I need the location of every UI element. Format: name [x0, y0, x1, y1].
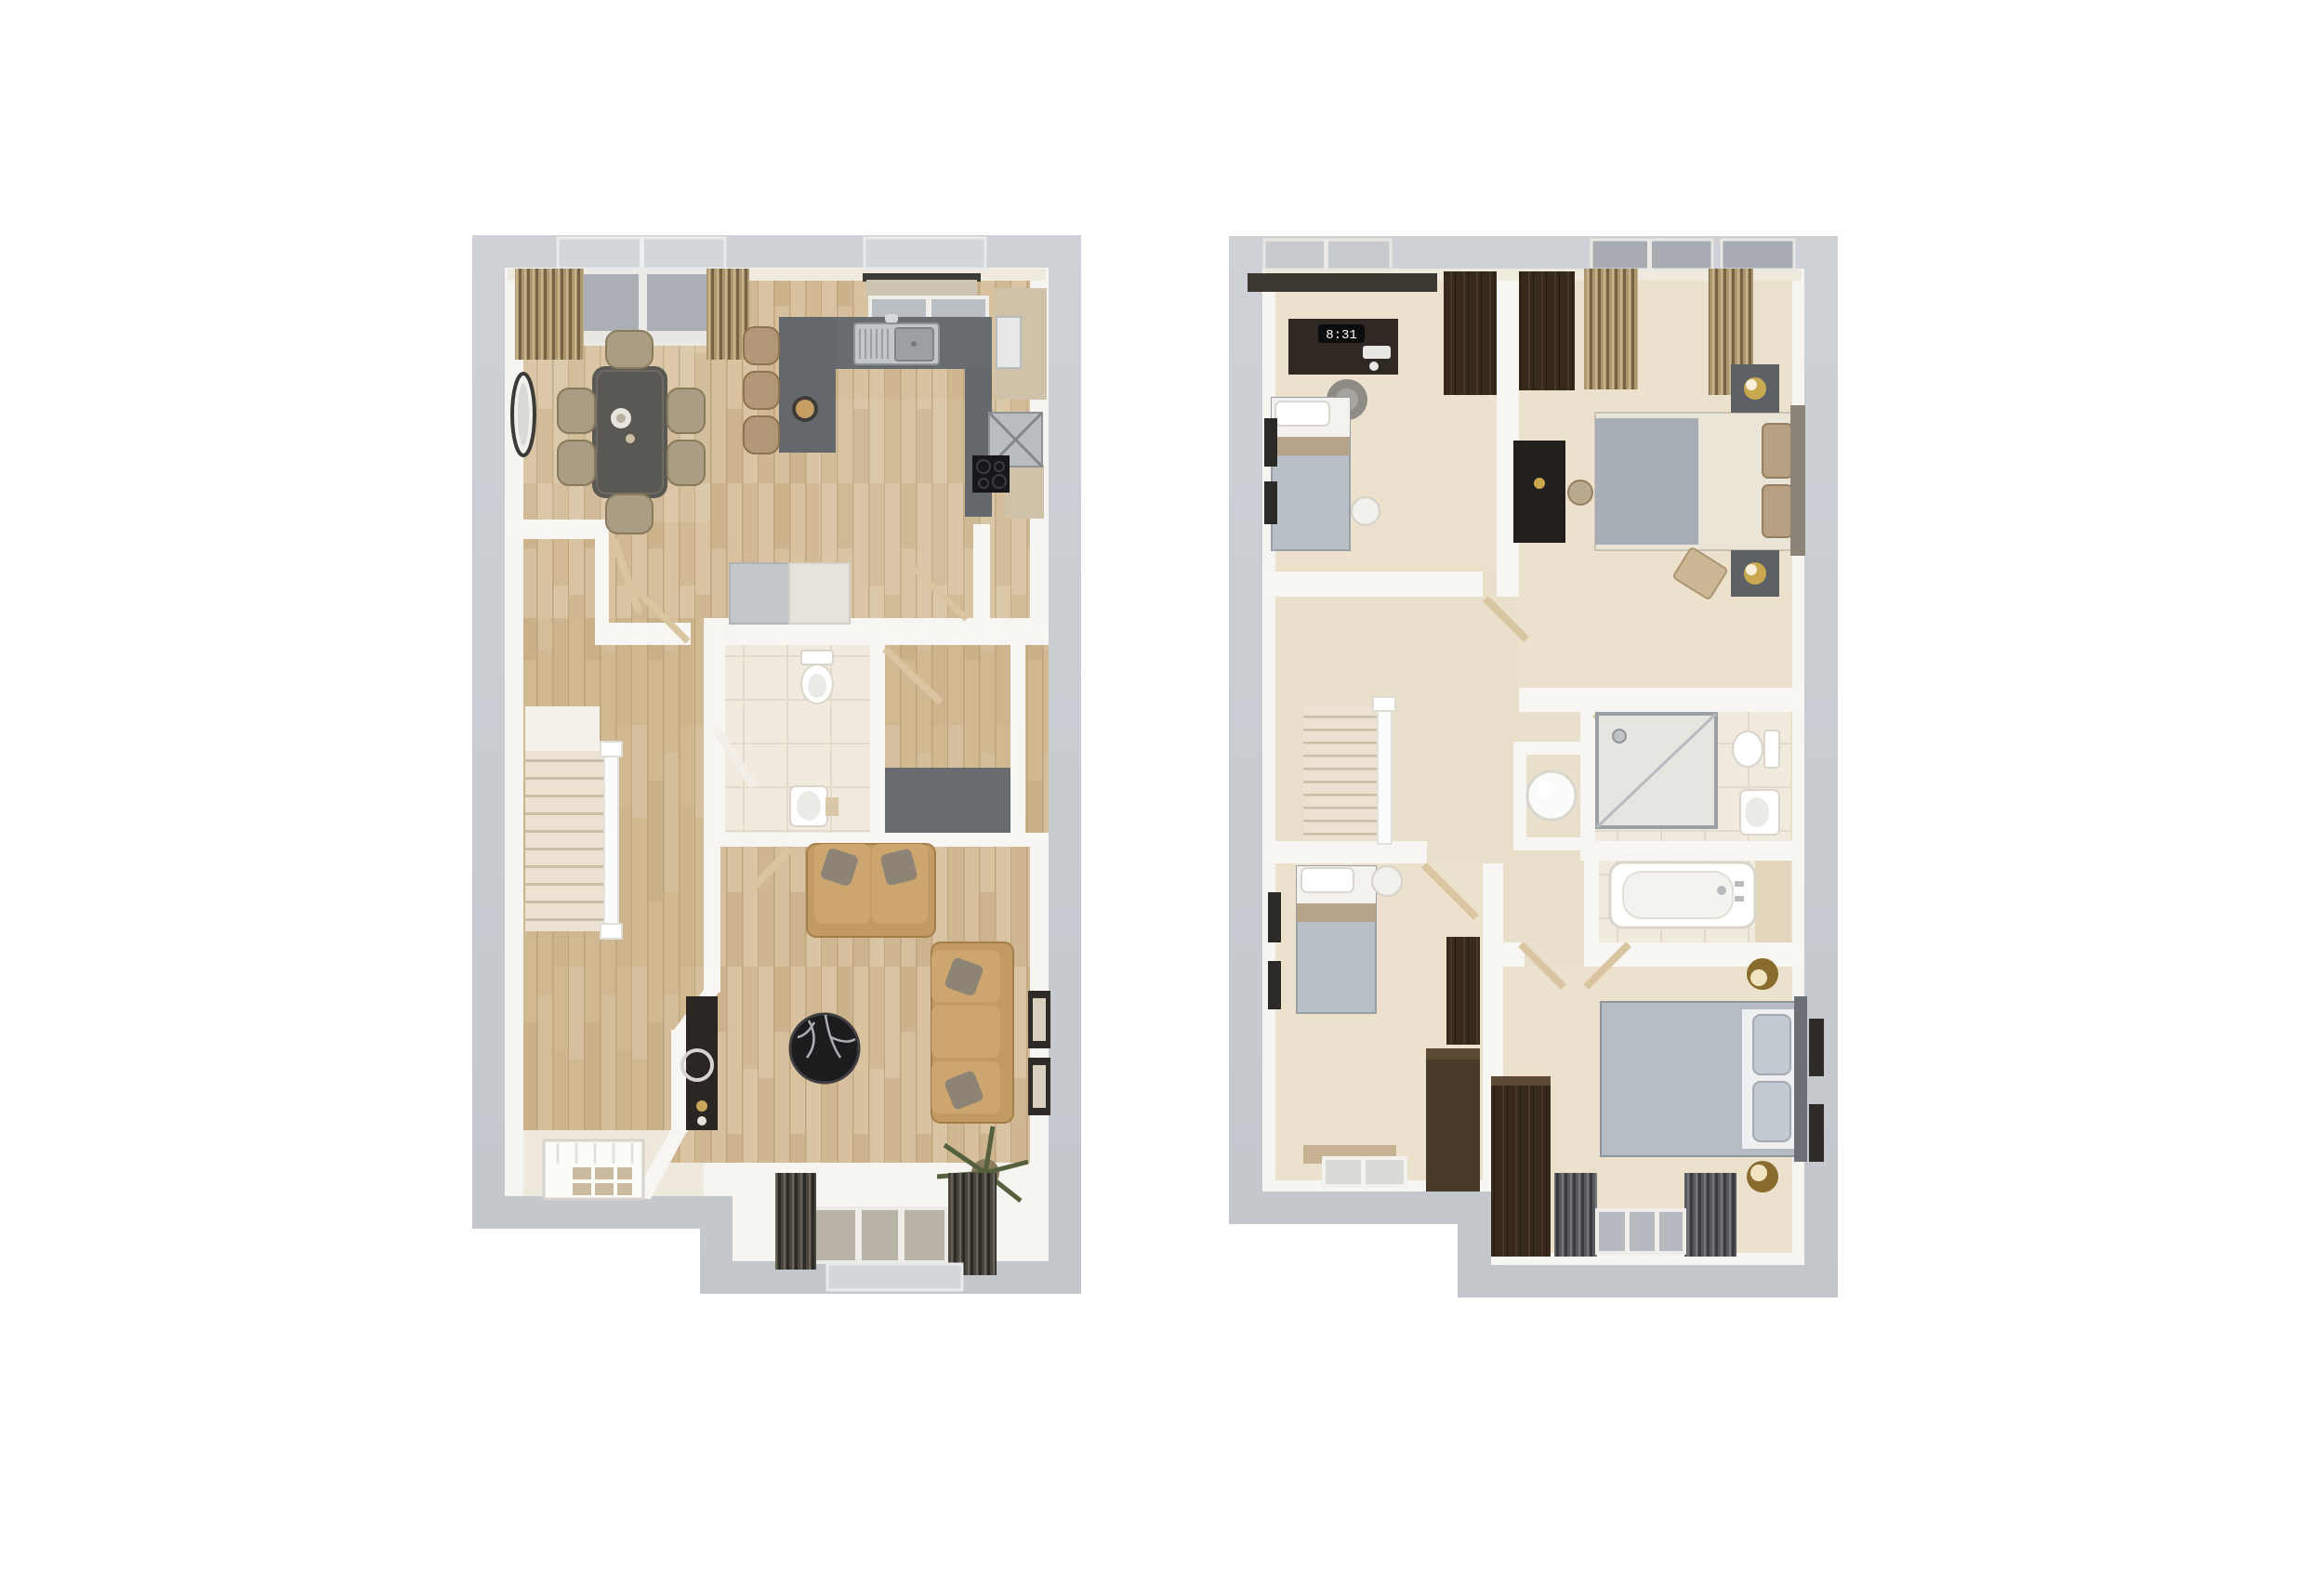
svg-text:8:31: 8:31 [1326, 328, 1357, 343]
